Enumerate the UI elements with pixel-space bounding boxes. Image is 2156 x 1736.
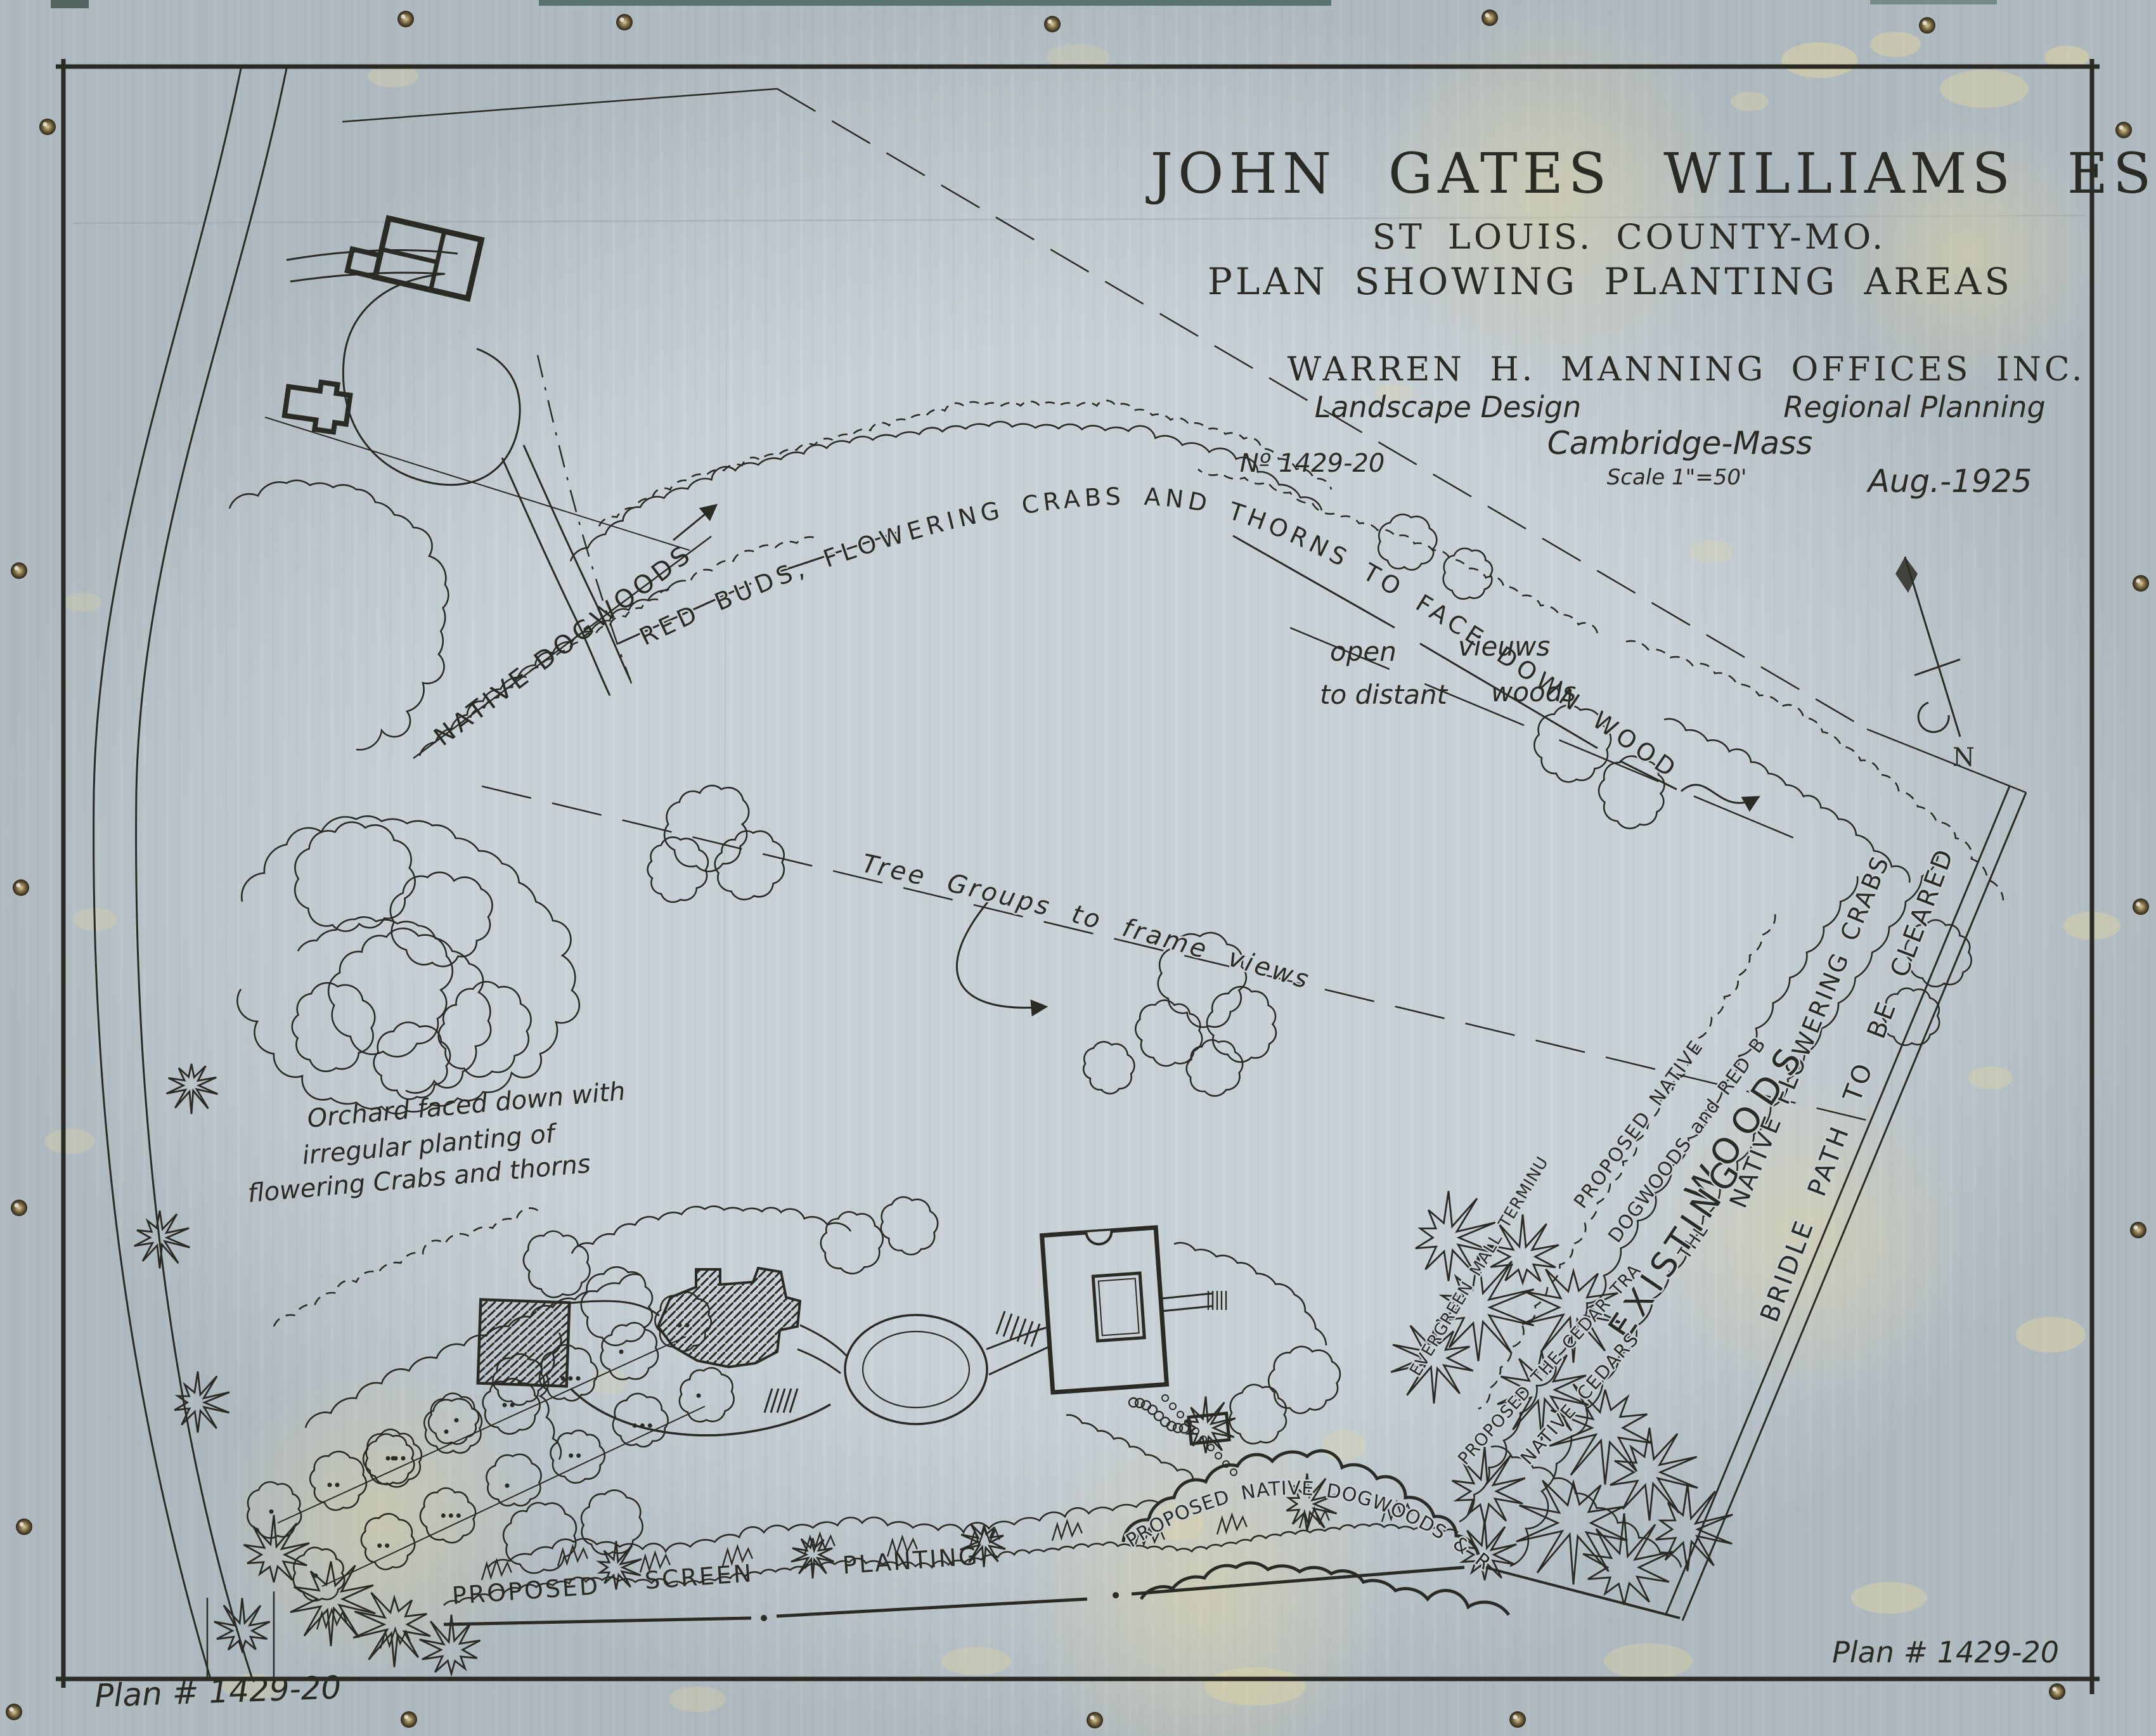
orchard-tree-dot [444, 1430, 449, 1434]
tack-highlight [1048, 20, 1052, 24]
orchard-tree-dot [335, 1483, 340, 1487]
stain [1940, 70, 2029, 108]
label-open-views: vieuws [1458, 631, 1550, 662]
scale-note: Scale 1"=50' [1607, 465, 1747, 490]
mounting-tack [39, 119, 56, 135]
orchard-tree-dot [569, 1376, 573, 1381]
orchard-tree-dot [401, 1456, 406, 1461]
stain [1322, 1430, 1366, 1461]
stain [2016, 1317, 2086, 1352]
orchard-tree-dot [505, 1484, 510, 1488]
tack-highlight [20, 1522, 24, 1527]
tack-highlight [2119, 126, 2124, 130]
plan-number: Nº 1429-20 [1240, 449, 1385, 478]
fence-post-dot [1113, 1592, 1119, 1598]
orchard-tree-dot [561, 1376, 565, 1381]
tack-highlight [1485, 13, 1490, 18]
orchard-tree-dot [328, 1483, 332, 1487]
stain [1689, 540, 1734, 563]
tack-highlight [401, 15, 406, 19]
orchard-tree-dot [456, 1513, 461, 1518]
tack-highlight [2053, 1687, 2057, 1692]
label-open-views: to distant [1320, 679, 1449, 710]
orchard-tree-dot [678, 1323, 682, 1328]
stain [1604, 1643, 1693, 1679]
stain [44, 1129, 95, 1154]
orchard-tree-dot [640, 1423, 645, 1428]
mounting-tack [1087, 1712, 1103, 1728]
orchard-tree-dot [576, 1376, 581, 1381]
tack-highlight [2136, 579, 2141, 583]
plan-number-bottom-right: Plan # 1429-20 [1832, 1635, 2059, 1669]
stain [1968, 1066, 2013, 1089]
tack-highlight [2134, 1226, 2138, 1230]
table-edge-sliver [539, 0, 1331, 6]
stain [590, 1370, 628, 1395]
orchard-tree-dot [503, 1403, 507, 1408]
firm-name: WARREN H. MANNING OFFICES INC. [1288, 351, 2086, 389]
tack-highlight [15, 1203, 19, 1208]
stain [1870, 32, 1921, 57]
orchard-tree-dot [697, 1394, 701, 1398]
mounting-tack [2133, 575, 2149, 592]
stain [1781, 42, 1857, 78]
tack-highlight [16, 883, 21, 888]
orchard-tree-dot [391, 1456, 396, 1461]
tack-highlight [2136, 902, 2141, 907]
orchard-tree-dot [269, 1510, 274, 1514]
mounting-tack [6, 1704, 22, 1720]
mounting-tack [11, 562, 27, 579]
tack-highlight [404, 1715, 409, 1720]
tack-highlight [1923, 21, 1927, 25]
plan-date: Aug.-1925 [1866, 463, 2032, 500]
orchard-tree-dot [385, 1543, 389, 1548]
orchard-tree-dot [569, 1453, 573, 1458]
tack-highlight [1090, 1716, 1095, 1720]
mounting-tack [1509, 1711, 1526, 1728]
stain [669, 1687, 726, 1712]
tack-highlight [15, 566, 19, 571]
tack-highlight [1513, 1715, 1518, 1720]
orchard-tree-dot [455, 1418, 459, 1423]
orchard-tree-dot [648, 1423, 652, 1428]
orchard-tree-dot [633, 1423, 637, 1428]
plan-sheet-image: JOHN GATES WILLIAMS ESQ. ST LOUIS. COUNT… [0, 0, 2156, 1736]
stain [1851, 1582, 1927, 1614]
north-letter: N [1953, 743, 1975, 772]
fence-post-dot [761, 1615, 767, 1621]
orchard-tree-dot [377, 1543, 382, 1548]
mounting-tack [397, 11, 414, 27]
orchard-tree-dot [314, 1574, 318, 1578]
mounting-tack [616, 14, 633, 30]
mounting-tack [2130, 1222, 2146, 1238]
mounting-tack [401, 1711, 417, 1728]
orchard-tree-dot [386, 1456, 391, 1461]
stain [941, 1647, 1011, 1675]
tack-highlight [10, 1707, 14, 1712]
orchard-tree-dot [619, 1350, 624, 1354]
orchard-tree-dot [685, 1323, 690, 1328]
mounting-tack [2049, 1683, 2065, 1700]
mounting-tack [11, 1200, 27, 1216]
service-left: Landscape Design [1315, 390, 1582, 424]
orchard-tree-dot [518, 1380, 522, 1385]
mounting-tack [1919, 17, 1935, 34]
client-name: JOHN GATES WILLIAMS ESQ. [1146, 141, 2156, 206]
firm-city: Cambridge-Mass [1547, 425, 1813, 462]
stain [1731, 92, 1769, 111]
mounting-tack [2115, 122, 2132, 138]
client-location: ST LOUIS. COUNTY-MO. [1372, 217, 1886, 257]
stain [63, 593, 101, 612]
label-open-views: woods [1491, 677, 1576, 708]
orchard-tree-dot [449, 1513, 453, 1518]
orchard-tree-dot [441, 1513, 446, 1518]
mounting-tack [2133, 898, 2149, 915]
table-edge-sliver [1870, 0, 1997, 4]
mounting-tack [1044, 16, 1061, 32]
service-right: Regional Planning [1783, 390, 2045, 424]
tack-highlight [620, 18, 624, 22]
mounting-tack [13, 879, 29, 896]
mounting-tack [1481, 10, 1498, 26]
table-edge-sliver [51, 0, 89, 8]
mounting-tack [16, 1519, 32, 1535]
stain [1204, 1668, 1306, 1706]
plan-subject: PLAN SHOWING PLANTING AREAS [1208, 260, 2013, 303]
garage-building [478, 1300, 570, 1387]
label-open-views: open [1330, 636, 1397, 667]
tack-highlight [43, 122, 48, 127]
orchard-tree-dot [576, 1453, 581, 1458]
